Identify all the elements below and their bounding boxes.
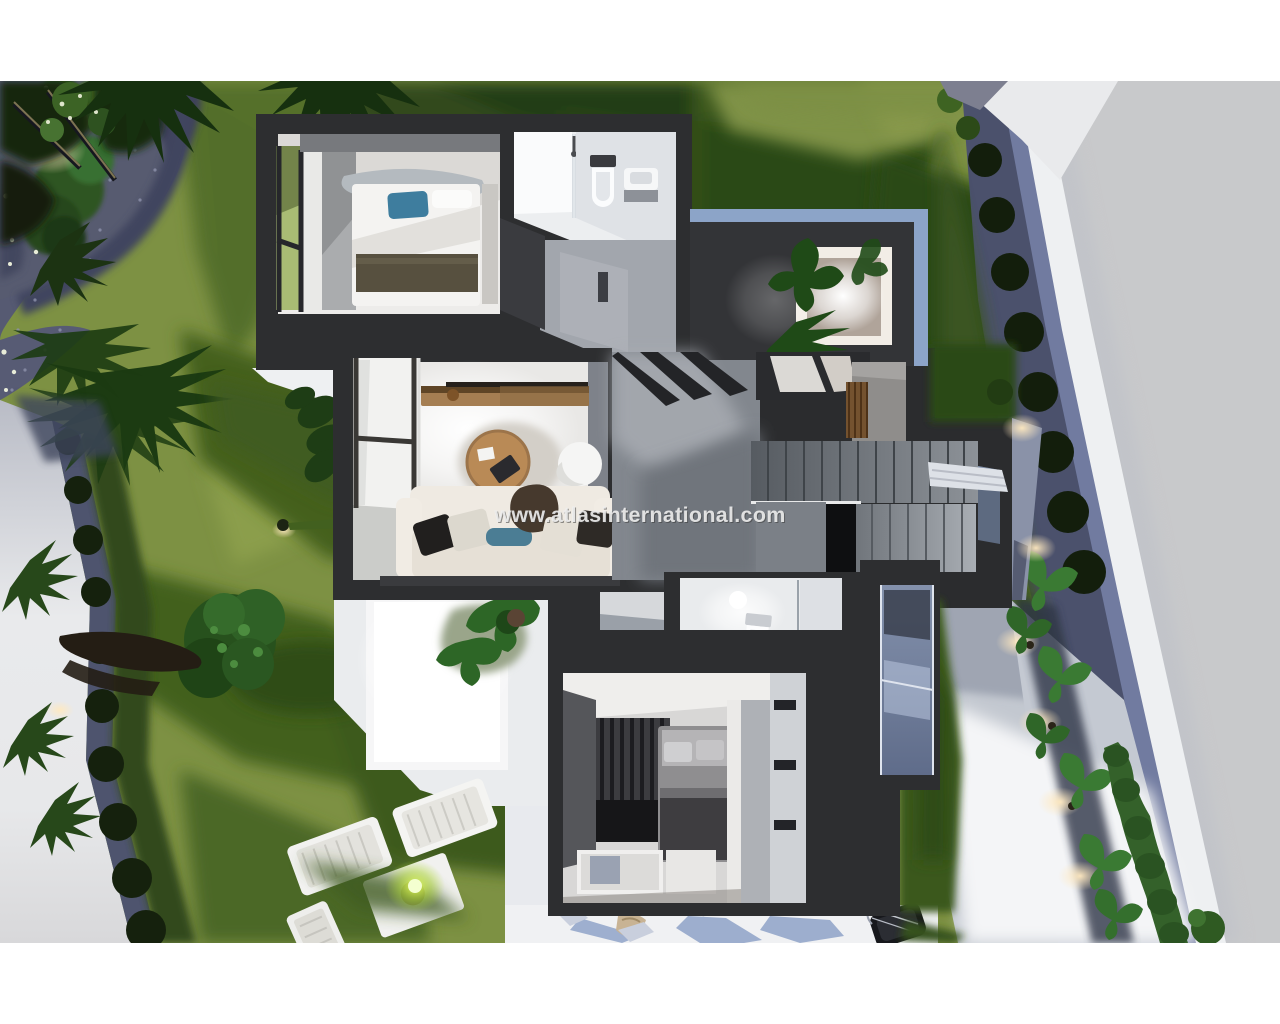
svg-text:www.atlasinternational.com: www.atlasinternational.com <box>493 503 785 527</box>
